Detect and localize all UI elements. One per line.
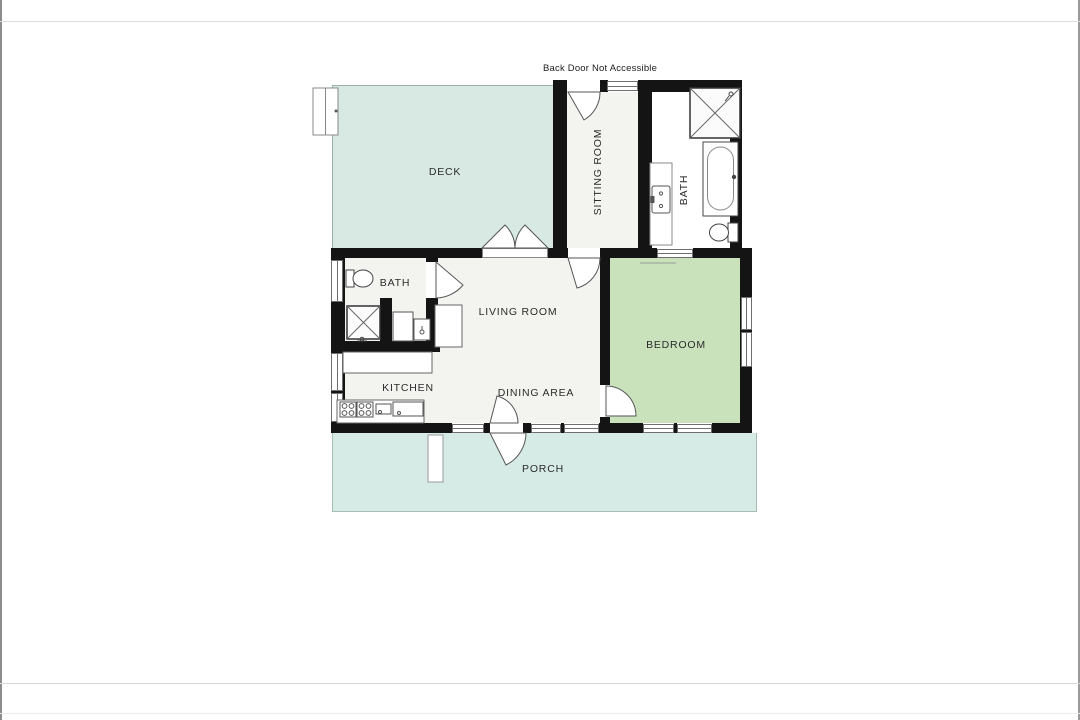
window-bedroom-right-1 (741, 297, 752, 330)
wall-sitting-bath-divider (638, 92, 652, 250)
window-bottom-5 (677, 424, 712, 433)
wall-bottom-a (331, 423, 452, 433)
window-bottom-3 (564, 424, 599, 433)
wall-bath-half-right-bottom (426, 298, 438, 342)
back-door-opening (568, 80, 600, 92)
wall-sitting-left (553, 80, 567, 258)
bath-main-label: BATH (678, 175, 690, 205)
wall-bath-half-stub (380, 298, 392, 342)
window-back-wall (607, 81, 638, 91)
window-bottom-4 (643, 424, 674, 433)
page-edge-left (0, 0, 2, 720)
porch-label: PORCH (522, 463, 564, 475)
wall-bath-half-bottom (337, 341, 440, 352)
wall-bottom-e (599, 423, 643, 433)
porch-door-opening (490, 423, 523, 433)
dining-area-label: DINING AREA (498, 387, 574, 399)
window-left-bath (331, 260, 343, 302)
living-room-label: LIVING ROOM (479, 306, 558, 318)
wall-top-b (638, 80, 742, 92)
back-door-note: Back Door Not Accessible (543, 63, 657, 74)
wall-right-top (730, 80, 742, 250)
wall-bath-half-right-top (426, 248, 438, 262)
deck-label: DECK (429, 166, 461, 178)
page-fold-line-bottom2 (0, 713, 1080, 714)
window-bottom-1 (452, 424, 484, 433)
window-bedroom-top (657, 249, 693, 258)
bedroom-door-opening (600, 385, 610, 417)
wall-bottom-g (712, 423, 752, 433)
bath-half-door-opening (426, 262, 438, 298)
bath-half-label: BATH (380, 277, 410, 289)
bath-main-floor (652, 92, 730, 250)
window-bedroom-right-2 (741, 332, 752, 367)
page-fold-line-bottom (0, 683, 1080, 684)
page-fold-line-top (0, 21, 1080, 22)
kitchen-label: KITCHEN (382, 382, 434, 394)
french-door-threshold (482, 248, 548, 258)
wall-midband-deck (332, 248, 482, 258)
bedroom-label: BEDROOM (646, 339, 706, 351)
window-bottom-2 (531, 424, 561, 433)
wall-bottom-c (523, 423, 531, 433)
window-left-kitchen-1 (331, 353, 343, 391)
wall-bedroom-left-top (600, 248, 610, 385)
sitting-living-door-opening (568, 248, 600, 258)
wall-midband-b (548, 248, 568, 258)
wall-midband-d (693, 248, 742, 258)
window-left-kitchen-2 (331, 393, 343, 422)
sitting-room-label: SITTING ROOM (592, 129, 604, 216)
floor-plan-page: Back Door Not Accessible DECK SITTING RO… (0, 0, 1080, 720)
